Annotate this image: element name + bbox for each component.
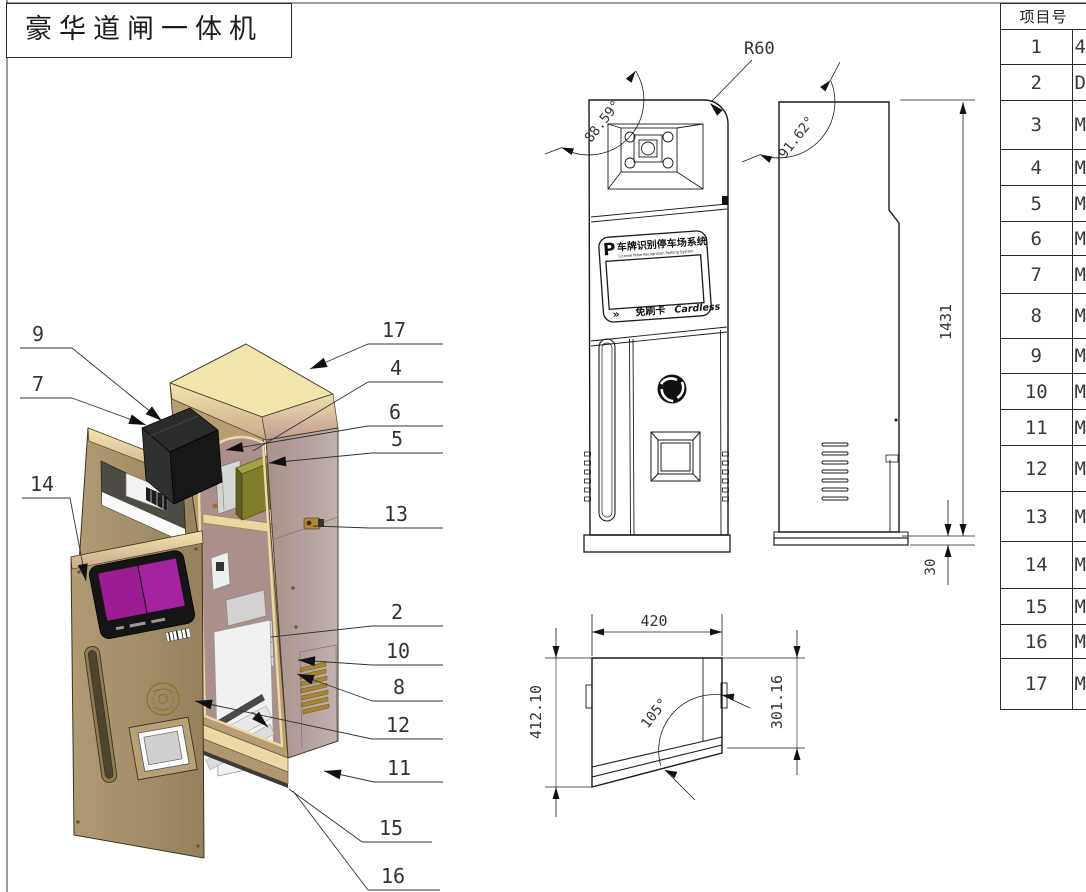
callout-7: 7	[32, 372, 44, 396]
sign-display-window	[606, 255, 704, 310]
callout-10: 10	[386, 639, 410, 663]
table-row: 12M	[1001, 445, 1086, 491]
side-view: 1431 30 91.62°	[742, 62, 975, 585]
table-row: 16M	[1001, 624, 1086, 658]
row-desc-partial: M	[1072, 589, 1086, 624]
dim-side-angle: 91.62°	[742, 62, 840, 163]
row-desc-partial: M	[1072, 492, 1086, 541]
camera-lens-icon	[642, 142, 655, 155]
row-item-number: 1	[1001, 30, 1072, 64]
dim-width-420: 420	[592, 612, 722, 656]
bottom-view: 420 412.10 301.16	[527, 612, 805, 817]
door-screw	[76, 820, 79, 823]
callout-15: 15	[379, 816, 403, 840]
callout-11: 11	[387, 756, 411, 780]
row-item-number: 13	[1001, 492, 1072, 541]
sign-cardless-cn: 免刷卡	[635, 303, 666, 318]
callout-2: 2	[391, 600, 403, 624]
svg-text:30: 30	[923, 559, 939, 576]
row-desc-partial: M	[1072, 625, 1086, 658]
side-outline	[779, 102, 899, 532]
side-vent	[822, 443, 848, 500]
table-row: 17M	[1001, 658, 1086, 709]
svg-text:91.62°: 91.62°	[776, 113, 819, 161]
front-view: P 车牌识别停车场系统 License Plate Recognition Pa…	[545, 39, 775, 552]
row-desc-partial: M	[1072, 294, 1086, 338]
table-row: 13M	[1001, 491, 1086, 541]
table-row: 14M	[1001, 541, 1086, 588]
row-desc-partial: M	[1072, 410, 1086, 445]
lower-opening	[129, 717, 197, 780]
front-screen-recess	[651, 432, 700, 481]
callout-9: 9	[32, 322, 44, 346]
table-row: 10M	[1001, 373, 1086, 409]
dim-height-1431: 1431	[900, 100, 975, 536]
table-row: 14	[1001, 29, 1086, 64]
row-item-number: 14	[1001, 542, 1072, 588]
dim-bottom-angle: 105°	[638, 692, 750, 800]
side-bracket-mark	[886, 455, 898, 462]
row-desc-partial: M	[1072, 256, 1086, 293]
sign-panel: P 车牌识别停车场系统 License Plate Recognition Pa…	[598, 230, 721, 323]
side-hole	[294, 625, 298, 629]
screw	[213, 504, 218, 509]
row-item-number: 12	[1001, 446, 1072, 491]
table-row: 11M	[1001, 409, 1086, 445]
table-row: 9M	[1001, 338, 1086, 373]
row-desc-partial: M	[1072, 222, 1086, 255]
row-item-number: 6	[1001, 222, 1072, 255]
dim-depth-412: 412.10	[527, 628, 560, 817]
row-desc-partial: M	[1072, 374, 1086, 409]
drawing-title: 豪华道闸一体机	[7, 4, 291, 55]
row-item-number: 10	[1001, 374, 1072, 409]
sign-cardless-en: Cardless	[674, 302, 721, 316]
svg-text:R60: R60	[744, 39, 775, 59]
table-row: 8M	[1001, 293, 1086, 338]
svg-text:88.59°: 88.59°	[582, 97, 625, 145]
row-desc-partial: M	[1072, 150, 1086, 185]
callout-14: 14	[30, 472, 54, 496]
svg-text:412.10: 412.10	[527, 685, 545, 739]
terminal-connector	[216, 562, 224, 571]
row-desc-partial: M	[1072, 446, 1086, 491]
callout-12: 12	[386, 713, 410, 737]
svg-text:301.16: 301.16	[768, 675, 786, 729]
title-box: 豪华道闸一体机	[6, 3, 292, 58]
lower-door-panel	[71, 531, 204, 858]
callout-8: 8	[393, 675, 405, 699]
row-desc-partial: M	[1072, 101, 1086, 149]
row-desc-partial: M	[1072, 659, 1086, 709]
table-row: 6M	[1001, 221, 1086, 255]
front-louvers	[585, 452, 729, 501]
callout-16: 16	[381, 864, 405, 888]
parts-table-rows: 142D3M4M5M6M7M8M9M10M11M12M13M14M15M16M1…	[1001, 29, 1086, 709]
table-row: 3M	[1001, 100, 1086, 149]
front-hinge-mark	[722, 196, 728, 205]
door-screw	[194, 547, 197, 550]
sign-p-logo: P	[602, 240, 616, 261]
isometric-view	[71, 344, 338, 858]
door-screw	[196, 844, 199, 847]
parts-table-header: 项目号	[1001, 4, 1086, 29]
callout-17: 17	[382, 318, 406, 342]
dim-base-30: 30	[902, 500, 975, 585]
callout-4: 4	[390, 356, 402, 380]
control-box-olive-side	[236, 468, 242, 520]
row-item-number: 16	[1001, 625, 1072, 658]
callout-5: 5	[391, 427, 403, 451]
row-desc-partial: 4	[1072, 30, 1086, 64]
front-seams	[591, 204, 727, 346]
row-desc-partial: D	[1072, 65, 1086, 100]
callout-13: 13	[384, 502, 408, 526]
table-row: 4M	[1001, 149, 1086, 185]
row-item-number: 9	[1001, 339, 1072, 373]
door-screw	[77, 570, 80, 573]
svg-text:1431: 1431	[937, 304, 955, 340]
dim-depth-301: 301.16	[768, 630, 801, 775]
row-item-number: 8	[1001, 294, 1072, 338]
front-camera-recess	[608, 124, 703, 189]
cad-drawing: 9 7 14 17 4 6 5 13 2 10 8 12 11 15 16	[0, 0, 1086, 892]
fan-logo-icon	[658, 375, 687, 404]
table-row: 2D	[1001, 64, 1086, 100]
table-row: 7M	[1001, 255, 1086, 293]
svg-text:420: 420	[640, 612, 667, 630]
side-hole	[291, 586, 295, 590]
row-item-number: 4	[1001, 150, 1072, 185]
row-item-number: 2	[1001, 65, 1072, 100]
row-item-number: 7	[1001, 256, 1072, 293]
bottom-left-tab	[586, 685, 592, 708]
row-item-number: 17	[1001, 659, 1072, 709]
front-base	[584, 535, 730, 552]
table-row: 5M	[1001, 185, 1086, 221]
row-item-number: 15	[1001, 589, 1072, 624]
drawing-sheet: 9 7 14 17 4 6 5 13 2 10 8 12 11 15 16	[0, 0, 1086, 892]
sign-chevrons-icon: »	[612, 308, 620, 321]
row-desc-partial: M	[1072, 542, 1086, 588]
row-item-number: 3	[1001, 101, 1072, 149]
table-row: 15M	[1001, 588, 1086, 624]
row-desc-partial: M	[1072, 339, 1086, 373]
front-light-slot	[599, 339, 615, 521]
row-desc-partial: M	[1072, 186, 1086, 221]
row-item-number: 11	[1001, 410, 1072, 445]
svg-text:105°: 105°	[638, 695, 671, 731]
parts-table: 项目号 142D3M4M5M6M7M8M9M10M11M12M13M14M15M…	[1000, 3, 1086, 710]
row-item-number: 5	[1001, 186, 1072, 221]
callout-6: 6	[389, 400, 401, 424]
